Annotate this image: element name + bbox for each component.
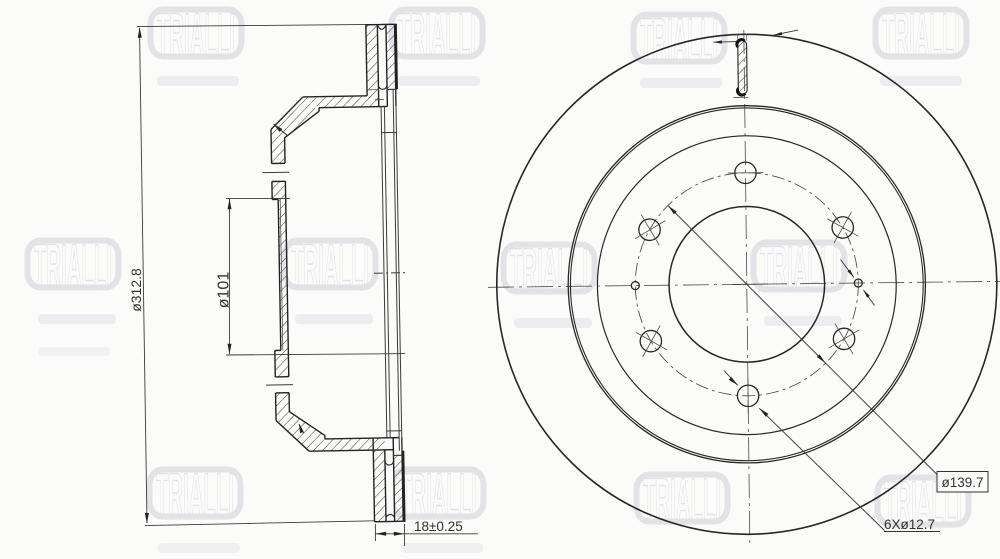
svg-text:ø101: ø101 — [216, 272, 233, 309]
svg-text:6Xø12.7: 6Xø12.7 — [884, 517, 935, 532]
svg-text:18±0.25: 18±0.25 — [414, 519, 463, 534]
svg-text:ø139.7: ø139.7 — [941, 475, 983, 490]
svg-text:ø312.8: ø312.8 — [128, 268, 144, 312]
